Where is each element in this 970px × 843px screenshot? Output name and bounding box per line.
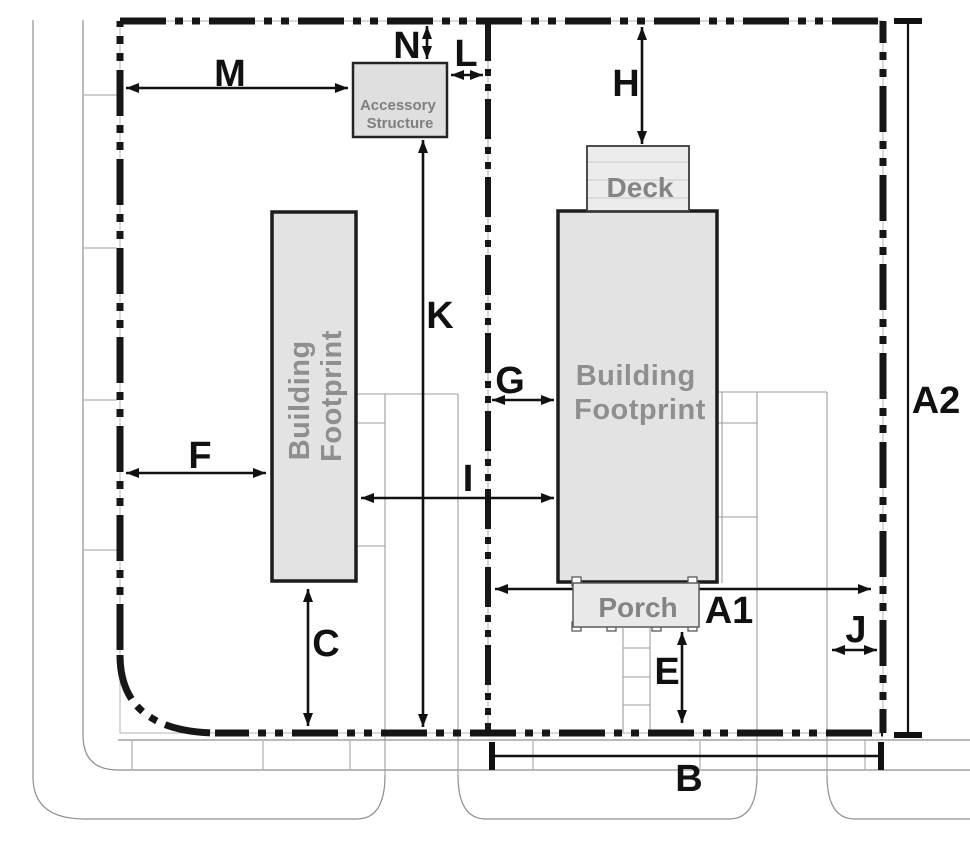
label-a1: A1 <box>705 590 754 632</box>
left-building-label: Building Footprint <box>284 330 348 462</box>
site-plan-diagram: M N L K H G F I C A1 E J A2 B Accessory … <box>0 0 970 843</box>
deck-label: Deck <box>607 172 674 203</box>
street-lines <box>33 20 970 819</box>
label-j: J <box>845 609 866 651</box>
boundary-corner-curve <box>120 655 215 733</box>
label-b: B <box>675 758 702 800</box>
label-l: L <box>454 33 477 75</box>
label-a2: A2 <box>912 380 961 422</box>
label-f: F <box>188 435 211 477</box>
label-c: C <box>312 623 339 665</box>
label-k: K <box>426 295 454 337</box>
accessory-structure-label: Accessory Structure <box>360 97 440 132</box>
label-g: G <box>495 360 525 402</box>
site-plan-canvas: M N L K H G F I C A1 E J A2 B Accessory … <box>0 0 970 843</box>
sidewalk-corner-arc <box>83 735 118 770</box>
apron-flare-right-b <box>827 775 855 819</box>
apron-flare-left-b <box>458 775 486 819</box>
label-h: H <box>612 63 639 105</box>
sidewalk-joint-ticks <box>84 95 865 769</box>
label-m: M <box>214 53 246 95</box>
label-n: N <box>393 25 420 67</box>
porch-label: Porch <box>598 592 677 623</box>
label-i: I <box>463 458 474 500</box>
label-e: E <box>654 651 679 693</box>
apron-flare-right-a <box>729 775 757 819</box>
apron-flare-left-a <box>357 775 385 819</box>
street-corner-arc <box>33 777 85 819</box>
